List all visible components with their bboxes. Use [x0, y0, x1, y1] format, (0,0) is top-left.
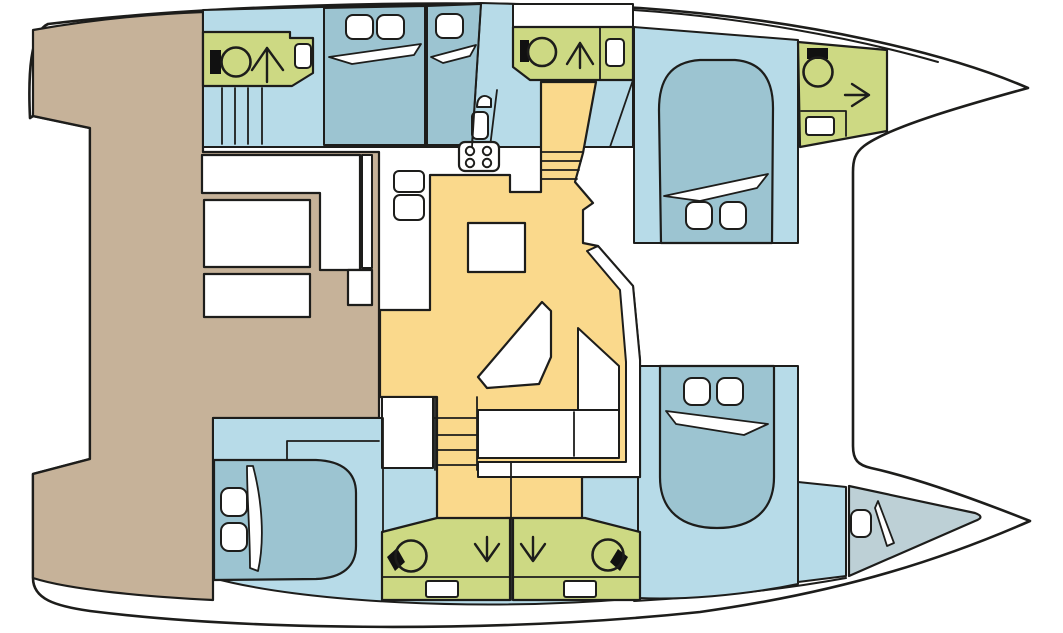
- stairwell-bottom-landing: [382, 397, 433, 468]
- bed-cabin-top-1: [324, 6, 425, 145]
- cockpit-bench-strip: [362, 155, 372, 268]
- sink-head-mid-top: [606, 39, 624, 66]
- catamaran-floor-plan: [0, 0, 1063, 633]
- pillow-cabin-top-1a: [346, 15, 373, 39]
- sink-head-bottom-right: [564, 581, 596, 597]
- stove-burner-3: [466, 159, 474, 167]
- sink-head-aft-top: [295, 44, 311, 68]
- toilet-tank-aft-top: [210, 50, 221, 74]
- stove-burner-2: [483, 147, 491, 155]
- stove-burner-1: [466, 147, 474, 155]
- pillow-forward-bottom-b: [717, 378, 743, 405]
- settee-bench-bottom: [478, 410, 619, 458]
- bed-forward-top: [659, 60, 773, 243]
- pillow-forward-bottom-a: [684, 378, 710, 405]
- cockpit-table-b: [204, 274, 310, 317]
- stove-burner-4: [483, 159, 491, 167]
- pillow-forward-top-b: [720, 202, 746, 229]
- sink-head-bottom-left: [426, 581, 458, 597]
- dinette-table: [468, 223, 525, 272]
- pillow-aft-bottom-a: [221, 488, 247, 516]
- bow-corridor-bottom: [798, 482, 846, 582]
- sink-bow-top: [806, 117, 834, 135]
- corridor-basin: [477, 96, 491, 107]
- cockpit-table-a: [204, 200, 310, 267]
- pillow-cabin-top-1b: [377, 15, 404, 39]
- stove: [459, 142, 499, 171]
- cockpit-small-box: [348, 270, 372, 305]
- pillow-aft-bottom-b: [221, 523, 247, 551]
- pillow-cabin-top-2: [436, 14, 463, 38]
- galley-sink-2: [394, 195, 424, 220]
- bed-aft-bottom: [214, 460, 356, 580]
- floor-plan-canvas: [0, 0, 1063, 633]
- deck-patch-above-head: [513, 4, 633, 27]
- pillow-forepeak: [851, 510, 871, 537]
- pillow-forward-top-a: [686, 202, 712, 229]
- galley-sink-1: [394, 171, 424, 192]
